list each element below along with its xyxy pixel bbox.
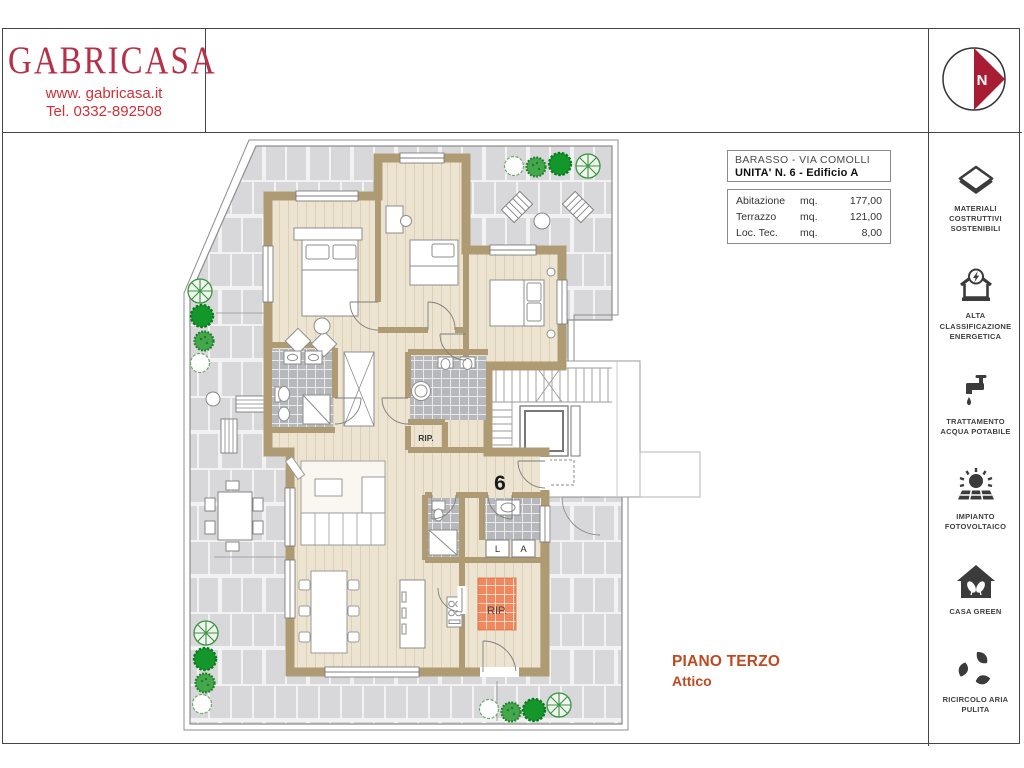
sidebar-item-aria: RICIRCOLO ARIA PULITA bbox=[932, 648, 1020, 715]
north-compass-icon: N bbox=[940, 45, 1008, 113]
area-table: Abitazione mq. 177,00 Terrazzo mq. 121,0… bbox=[727, 189, 891, 244]
floor-label: PIANO TERZO Attico bbox=[672, 653, 780, 689]
address-unit: UNITA' N. 6 - Edificio A bbox=[735, 167, 883, 179]
air-recirculation-icon bbox=[955, 648, 997, 690]
casa-green-icon bbox=[954, 562, 998, 602]
floor-title: PIANO TERZO bbox=[672, 653, 780, 671]
sidebar-item-acqua: TRATTAMENTO ACQUA POTABILE bbox=[932, 372, 1020, 437]
compass-north-label: N bbox=[977, 72, 988, 89]
area-row: Terrazzo mq. 121,00 bbox=[736, 210, 882, 226]
page-frame bbox=[2, 28, 1020, 744]
sustainable-materials-icon bbox=[956, 163, 996, 199]
water-treatment-icon bbox=[956, 372, 996, 412]
agency-logo: GABRICASA www. gabricasa.it Tel. 0332-89… bbox=[8, 40, 200, 120]
sidebar-item-label: TRATTAMENTO ACQUA POTABILE bbox=[932, 417, 1020, 437]
floor-subtitle: Attico bbox=[672, 673, 780, 689]
photovoltaic-icon bbox=[953, 467, 999, 507]
address-location: BARASSO - VIA COMOLLI bbox=[735, 154, 883, 166]
energy-class-icon bbox=[954, 264, 998, 306]
area-row: Loc. Tec. mq. 8,00 bbox=[736, 226, 882, 242]
sidebar-item-label: RICIRCOLO ARIA PULITA bbox=[932, 695, 1020, 715]
agency-website: www. gabricasa.it bbox=[8, 85, 200, 102]
sidebar-item-label: CASA GREEN bbox=[932, 607, 1020, 617]
area-row: Abitazione mq. 177,00 bbox=[736, 194, 882, 210]
sidebar-item-fotovoltaico: IMPIANTO FOTOVOLTAICO bbox=[932, 467, 1020, 532]
sidebar-item-label: MATERIALI COSTRUTTIVI SOSTENIBILI bbox=[932, 204, 1020, 234]
sidebar-item-energia: ALTA CLASSIFICAZIONE ENERGETICA bbox=[932, 264, 1020, 341]
header-divider bbox=[2, 132, 1022, 133]
sidebar-item-materiali: MATERIALI COSTRUTTIVI SOSTENIBILI bbox=[932, 163, 1020, 234]
agency-name: GABRICASA bbox=[8, 40, 200, 84]
address-box: BARASSO - VIA COMOLLI UNITA' N. 6 - Edif… bbox=[727, 150, 891, 182]
flyer-page: 6 RIP. RIP. L A GABRICASA www. gabricasa… bbox=[0, 0, 1024, 768]
sidebar-item-casa-green: CASA GREEN bbox=[932, 562, 1020, 617]
features-sidebar: MATERIALI COSTRUTTIVI SOSTENIBILI ALTA C… bbox=[929, 133, 1022, 745]
compass: N bbox=[940, 45, 1008, 113]
agency-phone: Tel. 0332-892508 bbox=[8, 103, 200, 120]
sidebar-item-label: ALTA CLASSIFICAZIONE ENERGETICA bbox=[932, 311, 1020, 341]
sidebar-item-label: IMPIANTO FOTOVOLTAICO bbox=[932, 512, 1020, 532]
